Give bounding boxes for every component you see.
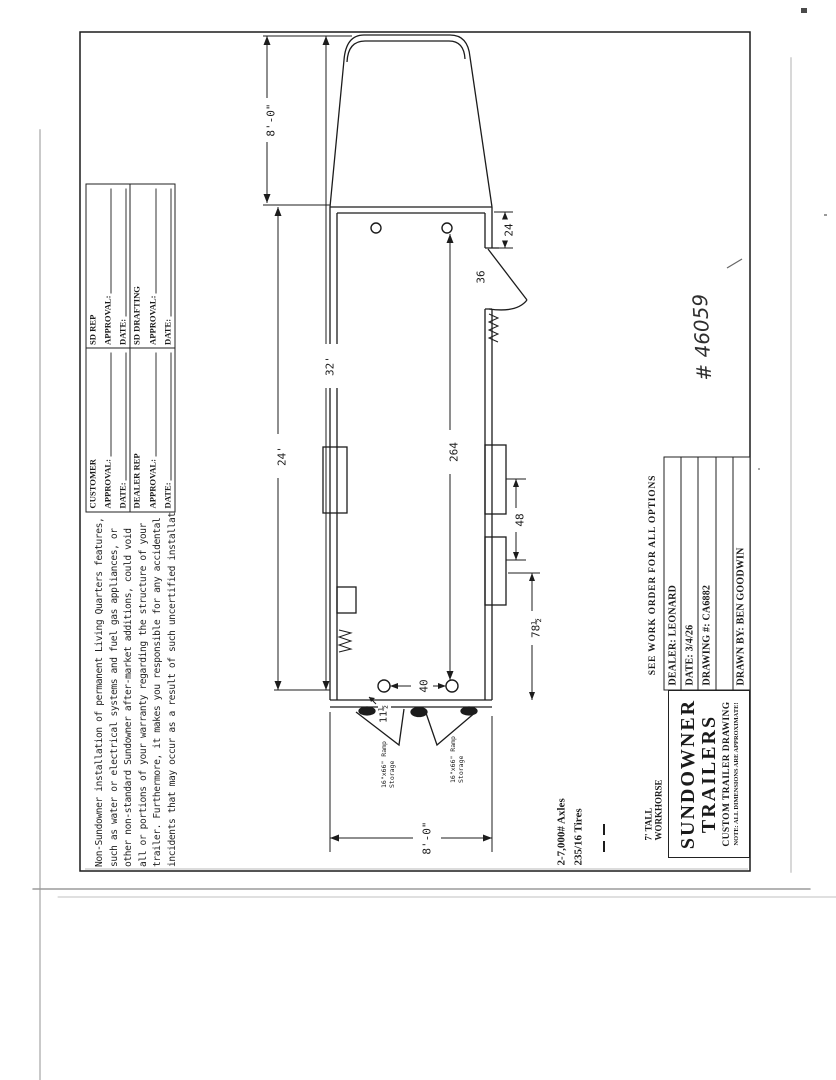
disclaimer-line: Non-Sundowner installation of permanent … [93,483,108,867]
approval-org-label: SD REP [87,187,97,345]
approval-label: APPROVAL: [103,295,112,345]
approval-table: CUSTOMER APPROVAL: DATE: SD REP APPROVAL… [85,183,175,512]
dim-box-length: 24' [276,446,289,466]
approval-label: APPROVAL: [148,295,157,345]
dimension-arrowheads [264,36,536,842]
warranty-disclaimer: Non-Sundowner installation of permanent … [93,483,183,867]
left-wall-cabinet [337,587,356,613]
rear-wall [330,700,492,707]
model-note: WORKHORSE [654,780,664,840]
see-work-order-note: SEE WORK ORDER FOR ALL OPTIONS [648,462,662,688]
ramp-storage-label-right: 16"x66" Ramp Storage [450,717,466,783]
left-wall [330,207,337,700]
dim-overall-length: 32' [324,356,337,376]
ramp-storage-text: Storage [389,722,397,788]
date-line [125,353,126,480]
dimension-lines [85,36,748,869]
front-post-circle-right [442,223,452,233]
title-block-dealer: DEALER: LEONARD [664,457,681,689]
scan-speck [801,8,807,13]
gooseneck-nose-inner-line [347,41,465,62]
dimensions-approximate-note: NOTE: ALL DIMENSIONS ARE APPROXIMATE! [733,703,740,846]
dim-ring-spacing: 40 [418,679,431,692]
disclaimer-line: such as water or electrical systems and … [108,483,123,867]
signature-line [110,353,111,457]
approval-org-label: CUSTOMER [87,352,97,509]
axle-tire-note: 2-7,000# Axles 235/16 Tires [553,735,592,865]
right-wall-window-1 [485,445,506,514]
dimension-labels: 8'-0" 24' 32' 264 24 36 48 78½ 40 11½ 8'… [265,103,543,854]
date-label: DATE: [118,318,127,344]
date-line [170,188,171,316]
ramp-hinge-pad-center [411,708,427,717]
signature-line [155,188,156,293]
disclaimer-line: all or portions of your warranty regardi… [137,483,152,867]
left-wall-step-marks [339,630,351,652]
title-block-info: DEALER: LEONARD DATE: 3/4/26 DRAWING #: … [663,456,750,690]
drawing-subtitle: CUSTOM TRAILER DRAWING [722,701,732,846]
approval-label: APPROVAL: [148,459,157,509]
gooseneck-nose-outline [330,35,492,207]
dim-window-spacing: 48 [514,513,527,526]
ramp-storage-text: Storage [458,717,466,783]
approval-cell-sd-rep: SD REP APPROVAL: DATE: [86,184,130,348]
dim-gooseneck-length: 8'-0" [265,103,278,136]
disclaimer-line: other non-standard Sundowner after-marke… [122,483,137,867]
title-block-date: DATE: 3/4/26 [681,457,698,689]
dim-rear-width: 8'-0" [421,821,434,854]
date-line [125,188,126,316]
company-name-line2: TRAILERS [699,715,720,833]
signature-line [155,353,156,457]
date-label: DATE: [163,482,172,508]
date-line [170,353,171,480]
dim-ring-offset: 11½ [378,705,390,723]
scanned-drawing-page: 8'-0" 24' 32' 264 24 36 48 78½ 40 11½ 8'… [0,0,836,1080]
title-block-drawn-by: DRAWN BY: BEN GOODWIN [733,457,749,689]
bulkhead-lines [330,207,492,213]
dim-door-offset: 24 [503,223,516,237]
left-wall-window [323,447,347,513]
approval-org-label: SD DRAFTING [131,187,141,345]
signature-line [110,188,111,293]
right-wall-step-marks [489,314,498,342]
height-model-note: 7' TALL WORKHORSE [644,780,663,840]
date-label: DATE: [118,482,127,508]
company-name-line1: SUNDOWNER [678,699,699,849]
dim-door-width: 36 [475,270,488,283]
rear-tiedown-circle-left [378,680,390,692]
company-title-box: SUNDOWNER TRAILERS CUSTOM TRAILER DRAWIN… [668,690,750,858]
approval-cell-sd-drafting: SD DRAFTING APPROVAL: DATE: [130,184,174,348]
trailer-plan-view [323,35,527,745]
rear-tiedown-circle-right [446,680,458,692]
date-label: DATE: [163,318,172,344]
height-note: 7' TALL [644,780,654,840]
ramp-hinge-pad-left [359,707,375,715]
dim-rear-section: 78½ [530,618,543,638]
side-door-panel [488,249,527,300]
handwriting-stroke [727,259,742,268]
approval-label: APPROVAL: [103,459,112,509]
title-block-empty-row [716,457,733,689]
ramp-storage-label-left: 16"x66" Ramp Storage [381,722,397,788]
approval-cell-customer: CUSTOMER APPROVAL: DATE: [86,348,130,512]
dim-interior-length: 264 [448,442,461,462]
right-wall-window-2 [485,537,506,605]
front-post-circle-left [371,223,381,233]
axles-note: 2-7,000# Axles [553,735,570,865]
tires-note: 235/16 Tires [570,735,587,865]
title-block-drawing-number: DRAWING #: CA6882 [698,457,715,689]
disclaimer-line: trailer. Furthermore, it makes you respo… [151,483,166,867]
disclaimer-line: incidents that may occur as a result of … [166,483,181,867]
side-door-swing-arc [489,300,527,310]
approval-cell-dealer-rep: DEALER REP APPROVAL: DATE: [130,348,174,512]
handwritten-job-number: # 46059 [687,271,728,403]
approval-org-label: DEALER REP [131,352,141,509]
